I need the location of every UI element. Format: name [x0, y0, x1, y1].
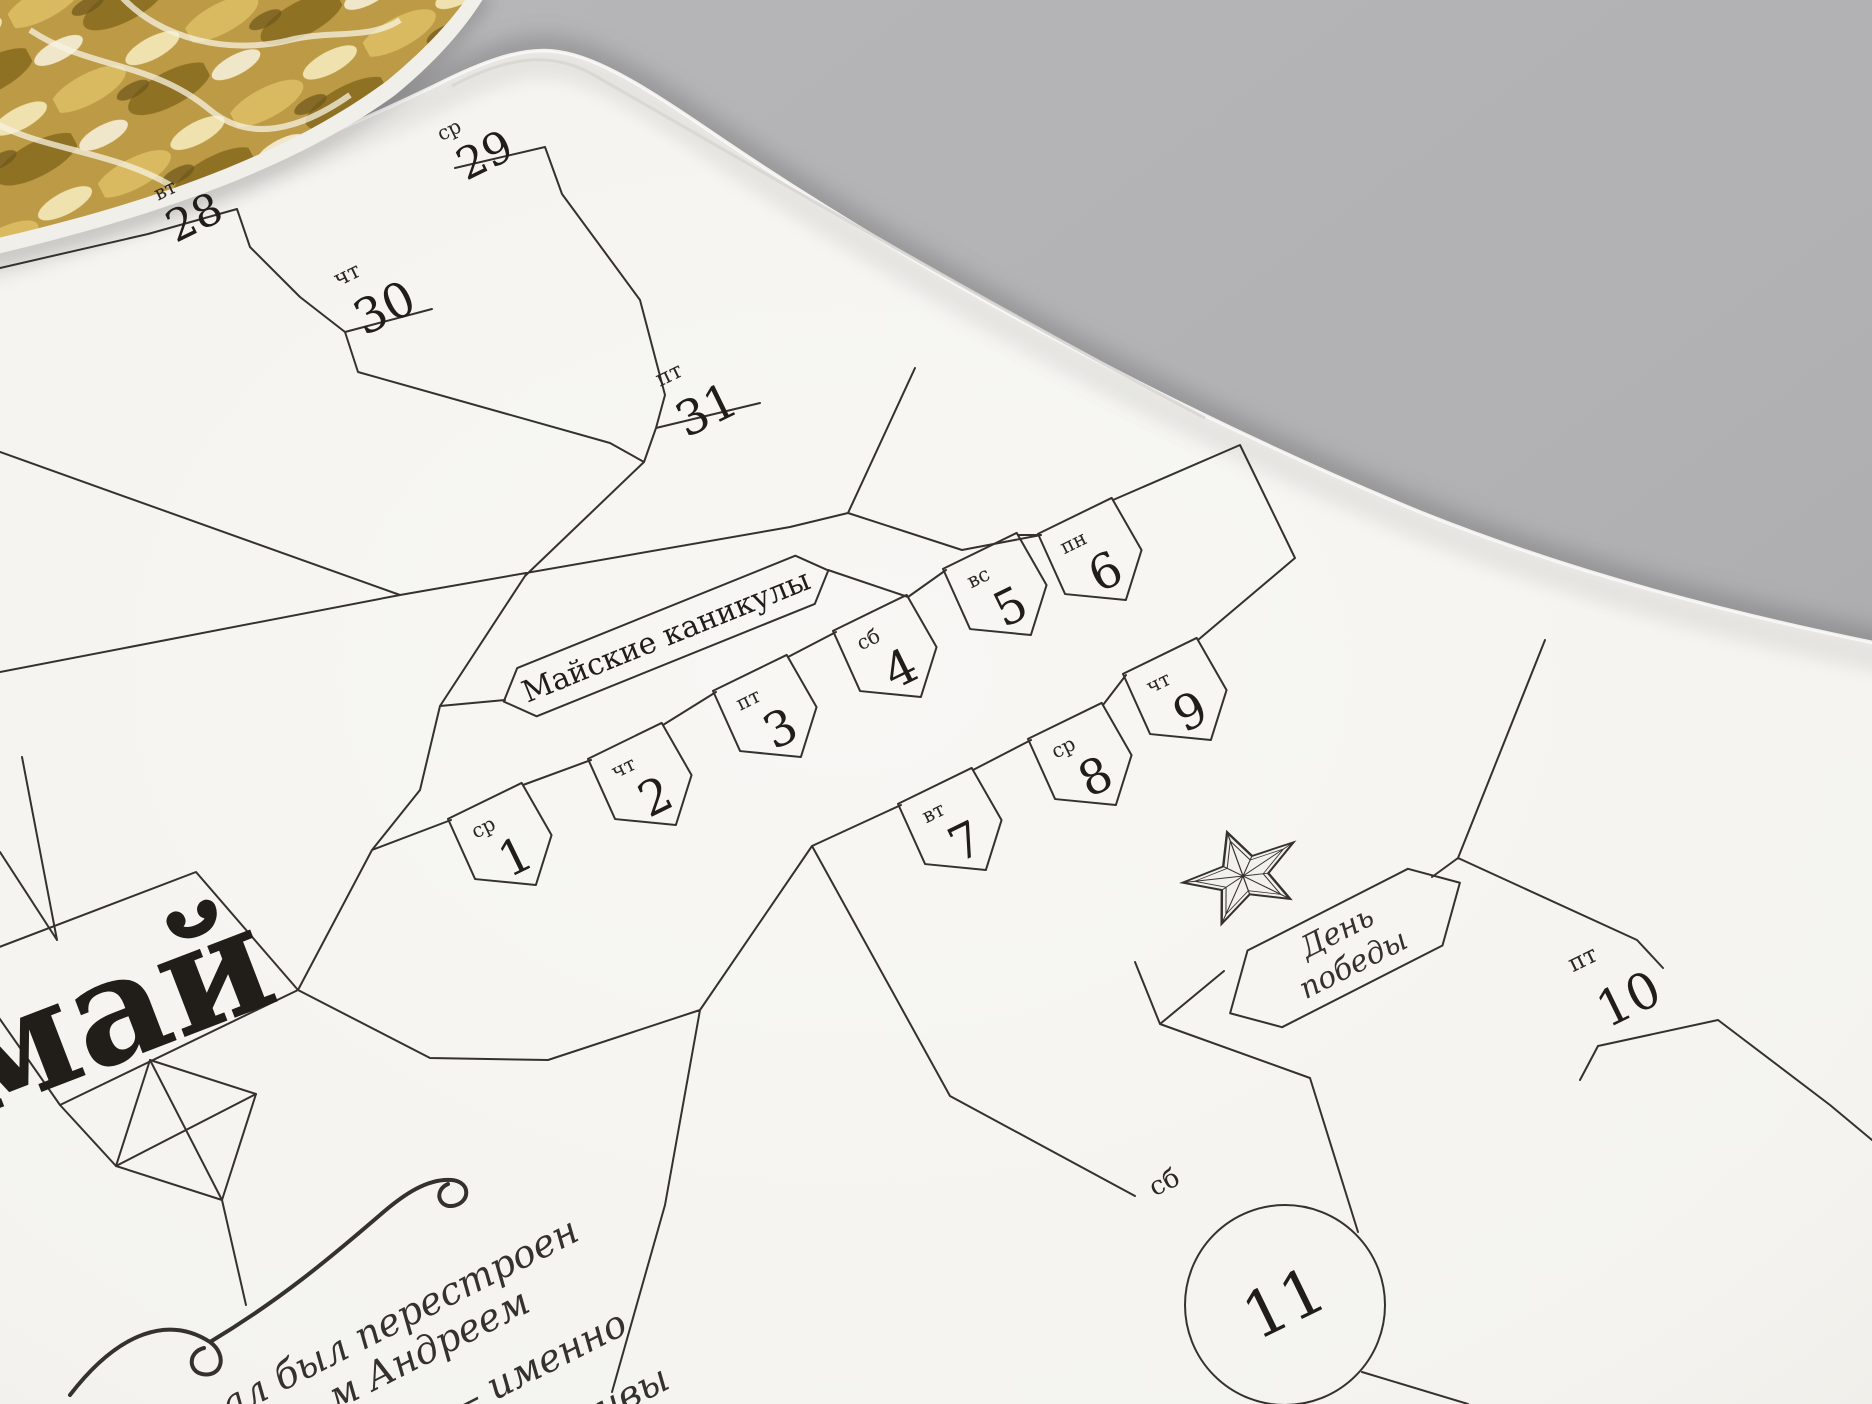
photo-of-calendar-page: май Майские каникулы вт 28 ср 29 чт 30 п… [0, 0, 1872, 1404]
calendar-scene: май Майские каникулы вт 28 ср 29 чт 30 п… [0, 0, 1872, 1404]
